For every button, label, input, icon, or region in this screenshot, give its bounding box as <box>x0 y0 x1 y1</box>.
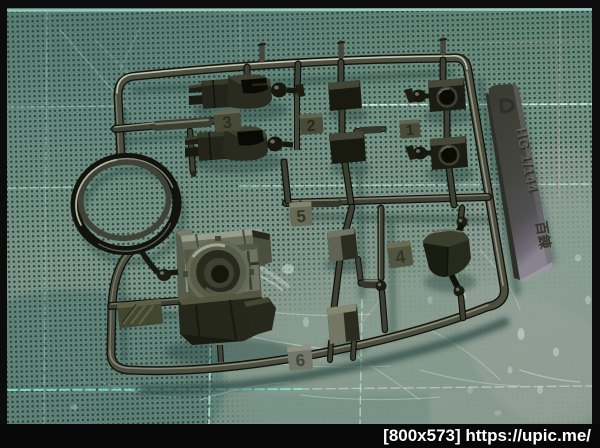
svg-text:6: 6 <box>295 351 306 371</box>
svg-text:5: 5 <box>296 207 307 227</box>
svg-text:1: 1 <box>406 123 415 140</box>
svg-text:2: 2 <box>306 118 316 136</box>
svg-text:[800x573] https://upic.me/: [800x573] https://upic.me/ <box>383 426 591 445</box>
svg-text:3: 3 <box>222 113 233 133</box>
